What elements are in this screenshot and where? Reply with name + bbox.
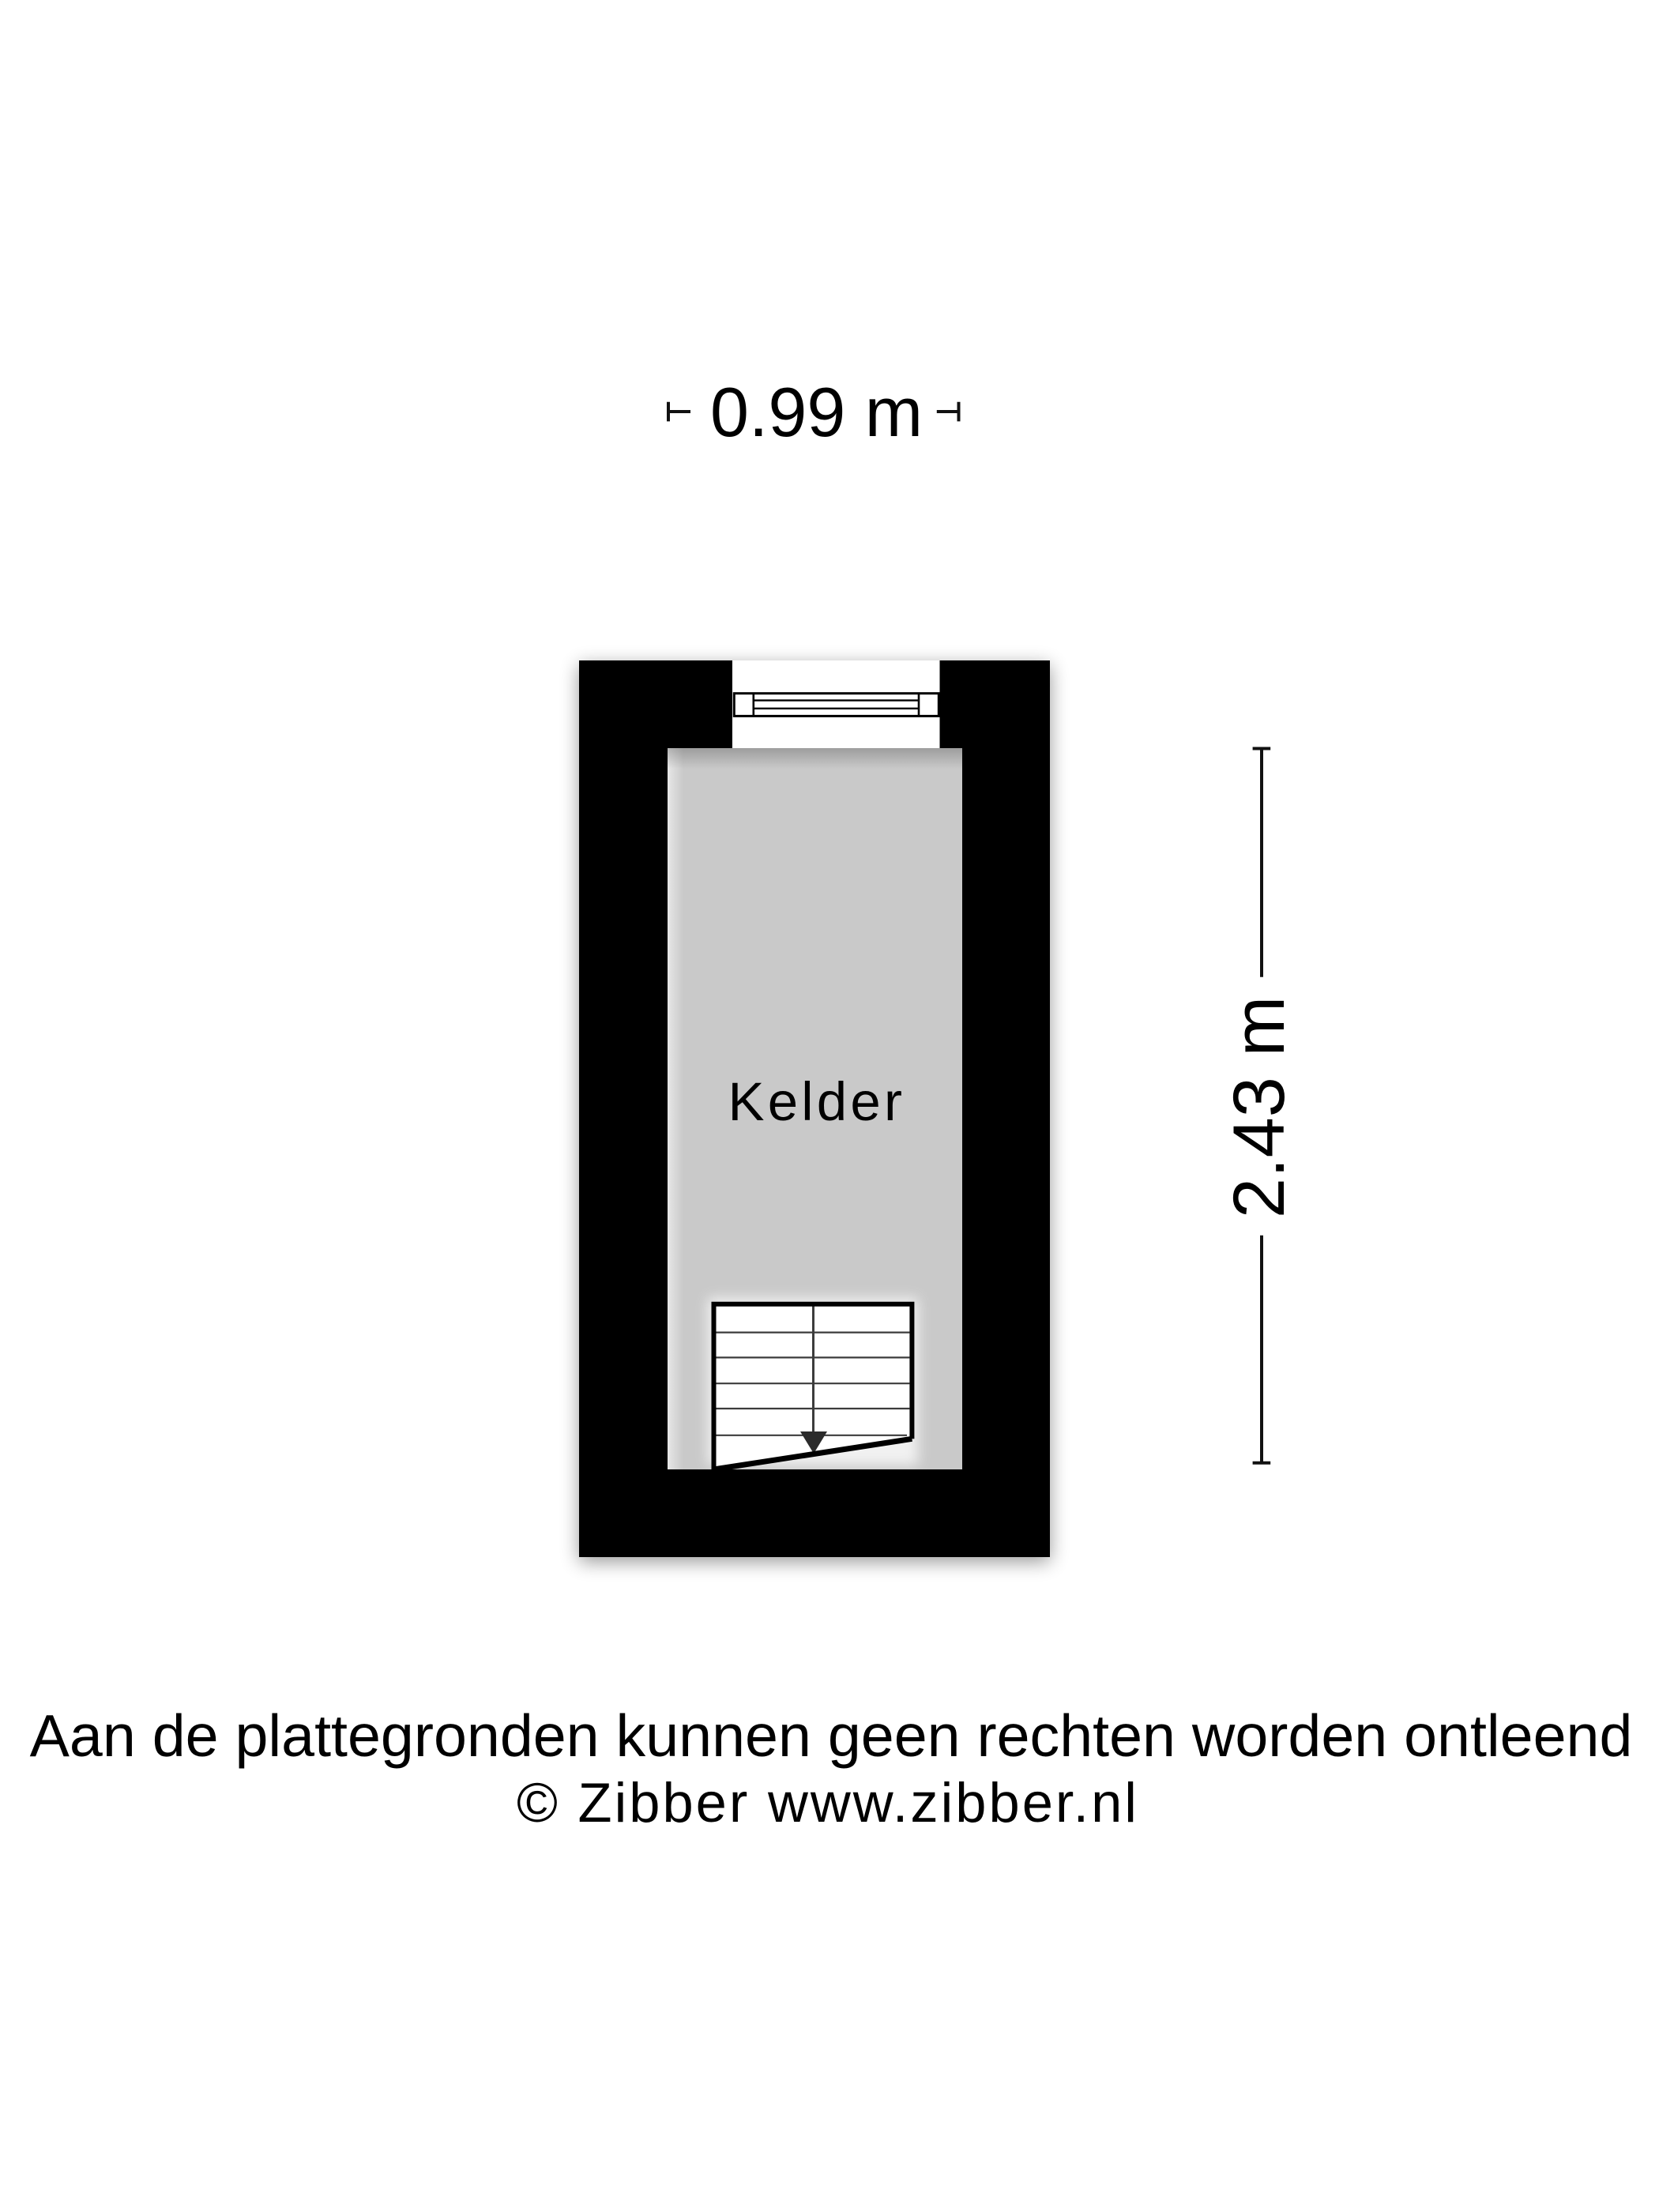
svg-text:© Zibber www.zibber.nl: © Zibber www.zibber.nl	[517, 1771, 1139, 1834]
svg-text:Kelder: Kelder	[728, 1071, 905, 1132]
svg-text:Aan de plattegronden kunnen ge: Aan de plattegronden kunnen geen rechten…	[30, 1702, 1633, 1769]
svg-text:0.99 m: 0.99 m	[710, 373, 923, 451]
svg-text:2.43 m: 2.43 m	[1219, 996, 1300, 1218]
